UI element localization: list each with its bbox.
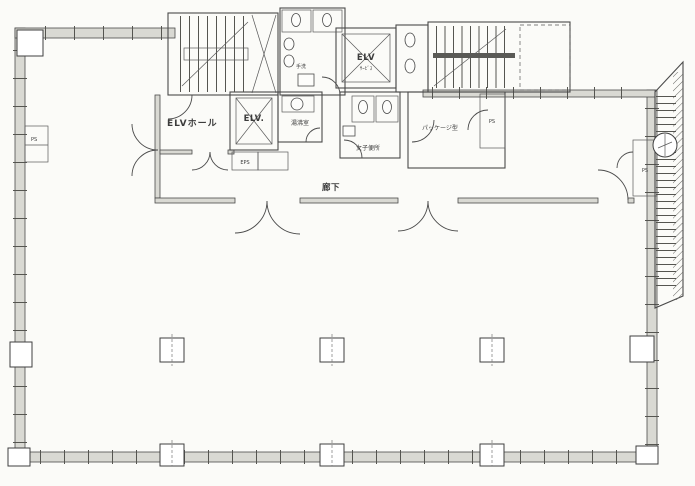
stair-rail — [433, 53, 515, 58]
label-hand-wash: 手洗 — [296, 63, 306, 70]
label-package-room: パッケージ型 — [422, 124, 458, 132]
label-ps-package: PS — [489, 119, 495, 125]
stair-hatch — [673, 72, 683, 300]
label-elv-hall: ELVホール — [167, 118, 218, 129]
label-service-elevator-sub: ｻｰﾋﾞｽ — [360, 65, 373, 72]
label-service-elevator: ELV — [357, 53, 375, 63]
label-passenger-elevator: ELV. — [244, 114, 265, 124]
floor-plan-scan: ELVホール ELV. ELV ｻｰﾋﾞｽ 廊下 湯沸室 女子便所 手洗 パッケ… — [0, 0, 695, 486]
label-ps-left: PS — [31, 137, 37, 143]
label-corridor: 廊下 — [322, 182, 340, 193]
paper-background — [0, 0, 695, 486]
floor-plan-drawing: ELVホール ELV. ELV ｻｰﾋﾞｽ 廊下 湯沸室 女子便所 手洗 パッケ… — [0, 0, 695, 486]
label-kitchenette: 湯沸室 — [291, 119, 309, 127]
label-ps-right: PS — [642, 168, 648, 174]
label-womens-toilet: 女子便所 — [356, 144, 380, 152]
label-eps: EPS — [240, 160, 249, 166]
